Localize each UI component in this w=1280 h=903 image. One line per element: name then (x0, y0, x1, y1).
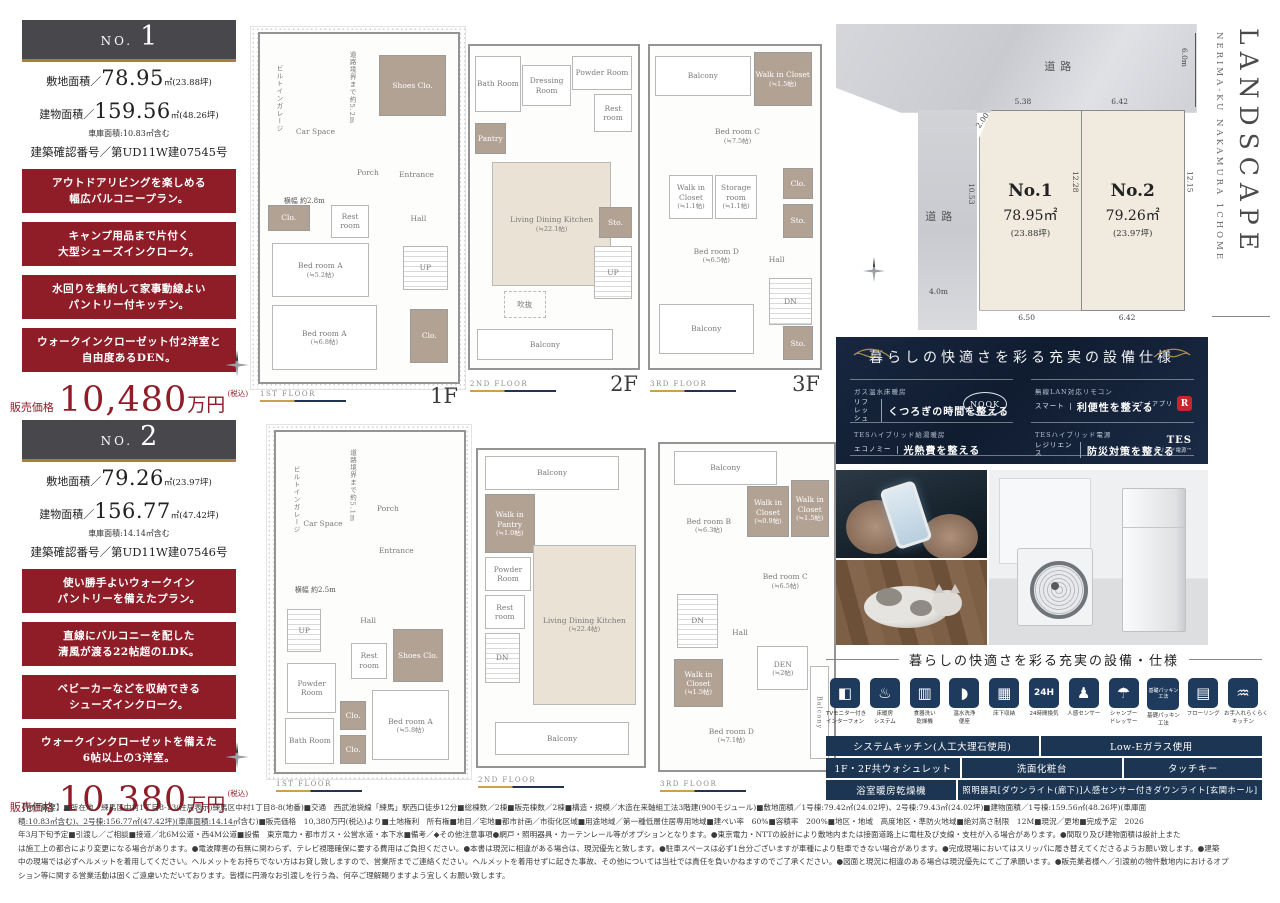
unit1-floorplan-3f: Balcony Walk in Closet(≒1.5帖) Bed room C… (648, 44, 822, 370)
dim-538: 5.38 (1015, 97, 1032, 106)
room-porch: Porch (353, 159, 383, 187)
room-balcony-bottom: Balcony (495, 722, 630, 756)
room-balcony-top: Balcony (655, 56, 751, 97)
rinnai-app-badge: リンナイアプリ R (1124, 396, 1192, 411)
room-shoes-closet: Shoes Clo. (393, 629, 444, 682)
table-row: 浴室暖房乾燥機 照明器具[ダウンライト(廊下)]人感センサー付きダウンライト[玄… (826, 780, 1262, 800)
room-walkin-pantry: Walk in Pantry(≒1.0帖) (485, 494, 535, 553)
garage-label: ビルトインガレージ (291, 466, 301, 575)
compass-icon (224, 350, 250, 380)
unit1-land-area: 敷地面積／78.95㎡(23.88坪) (22, 66, 236, 95)
cat-head (932, 590, 962, 616)
unit2-no-label: NO. (101, 424, 133, 448)
stairs-up: UP (594, 246, 631, 300)
stairs-down: DN (769, 278, 812, 325)
unit2-feature-4: ウォークインクローゼットを備えた6帖以上の3洋室。 (22, 728, 236, 772)
underfloor-storage-icon: ▦ 床下収納 (985, 678, 1023, 728)
room-hall: Hall (726, 620, 754, 646)
floor-number-3f: 3F (792, 372, 820, 396)
nook-logo: NOOK (963, 392, 1007, 416)
legal-line: 【物件概要】■所在地／練馬区中村1丁目8-13(住居表示)練馬区中村1丁目8-8… (18, 801, 1264, 815)
floor-label-1f: 1ST FLOOR (276, 780, 362, 792)
room-restroom: Rest room (594, 94, 631, 131)
photo-smartphone-app (836, 470, 987, 558)
washlet-icon: ◗ 温水洗浄便座 (945, 678, 983, 728)
unit2-feature-3: ベビーカーなどを収納できるシューズインクローク。 (22, 675, 236, 719)
room-restroom: Rest room (331, 205, 369, 238)
table-cell-lighting: 照明器具[ダウンライト(廊下)]人感センサー付きダウンライト[玄関ホール] (958, 780, 1262, 800)
legal-line: 中の現場では必ずヘルメットを着用してください。ヘルメットをお持ちでない方はお貸し… (18, 855, 1264, 869)
room-restroom: Rest room (485, 595, 525, 629)
dimension-line (1195, 33, 1196, 106)
unit1-garage-note: 車庫面積:10.83㎡含む (22, 128, 236, 139)
room-bedroom-a: Bed room A(≒5.8帖) (372, 690, 449, 760)
title-dash (826, 659, 899, 660)
flourish-icon (850, 345, 892, 369)
landscape-title: LANDSCAPE (1234, 28, 1263, 310)
unit1-building-area: 建物面積／159.56㎡(48.26坪) (22, 99, 236, 128)
unit1-header: NO. 1 (22, 20, 236, 62)
dim-4m: 4.0m (929, 287, 948, 296)
equipment-table: システムキッチン(人工大理石使用) Low-Eガラス使用 1F・2F共ウォシュレ… (826, 736, 1262, 800)
room-powder: Powder Room (572, 56, 631, 90)
shampoo-dresser-icon: ☂ シャンプードレッサー (1105, 678, 1143, 728)
unit1-floorplan-2f: Bath Room Dressing Room Powder Room Rest… (468, 44, 640, 370)
site-lot-2: No.2 79.26㎡ (23.97坪) (1081, 110, 1185, 311)
compass-icon (862, 257, 886, 285)
room-wic: Walk in Closet(≒1.5帖) (754, 52, 812, 106)
rinnai-app-icon: R (1177, 396, 1192, 411)
room-bedroom-a: Bed room A(≒5.2帖) (272, 243, 369, 297)
title-dash (1189, 659, 1262, 660)
table-cell-touch-key: タッチキー (1124, 758, 1262, 778)
room-storage: Sto. (783, 204, 814, 238)
unit1-no-label: NO. (101, 24, 133, 48)
landscape-margin: NERIMA-KU NAKAMURA 1CHOME LANDSCAPE (1214, 28, 1270, 310)
room-balcony: Balcony (477, 329, 613, 360)
unit1-floorplan-1f: Car Space ビルトインガレージ 道路境界まで約5.2m 横幅 約2.8m… (258, 32, 460, 384)
room-closet: Clo. (268, 205, 310, 231)
depth-dimension: 道路境界まで約5.1m (347, 449, 357, 578)
room-bedroom-c: Bed room C(≒7.5帖) (691, 104, 785, 168)
site-lot-1: No.1 78.95㎡ (23.88坪) (979, 110, 1081, 311)
unit1-feature-2: キャンプ用品まで片付く大型シューズインクローク。 (22, 222, 236, 266)
room-wic: Walk in Closet(≒0.9帖) (747, 486, 789, 537)
unit2-feature-2: 直線にバルコニーを配した清風が渡る22帖超のLDK。 (22, 622, 236, 666)
unit2-confirmation-number: 建築確認番号／第UD11W建07546号 (22, 544, 236, 560)
floor-label-3f: 3RD FLOOR (650, 380, 736, 392)
equipment-icon-row: ◧ TVモニター付きインターフォン ♨ 床暖房システム ▥ 食器洗い乾燥機 ◗ … (826, 678, 1262, 728)
room-bathroom: Bath Room (285, 718, 334, 764)
equipment-section: 暮らしの快適さを彩る充実の設備・仕様 ◧ TVモニター付きインターフォン ♨ 床… (826, 650, 1262, 800)
room-bedroom-d: Bed room D(≒7.1帖) (691, 711, 771, 760)
floor-label-2f: 2ND FLOOR (470, 380, 556, 392)
stairs-down: DN (677, 594, 717, 648)
water-heater-tank (1122, 488, 1186, 632)
room-wic-2: Walk in Closet(≒1.1帖) (669, 175, 714, 219)
dim-6m: 6.0m (1180, 48, 1189, 67)
width-dimension: 横幅 約2.5m (295, 585, 336, 595)
room-wic-3: Walk in Closet(≒1.5帖) (674, 659, 723, 707)
cat-patch (876, 588, 902, 606)
easy-care-kitchen-icon: ♒ お手入れらくらくキッチン (1224, 678, 1262, 728)
room-balcony-top: Balcony (485, 456, 620, 490)
dim-642-top: 6.42 (1111, 97, 1128, 106)
unit2-land-area: 敷地面積／79.26㎡(23.97坪) (22, 466, 236, 495)
room-closet-2: Clo. (340, 735, 366, 764)
unit1-price: 販売価格 10,480 万円 (税込) (22, 380, 236, 420)
garage-label: ビルトインガレージ (274, 65, 284, 183)
room-bedroom-c: Bed room C(≒6.5帖) (750, 548, 820, 613)
unit1-feature-4: ウォークインクローゼット付2洋室と自由度あるDEN。 (22, 328, 236, 372)
legal-line: 積:10.83㎡含む)、2号棟:156.77㎡(47.42坪)(車庫面積:14.… (18, 815, 1264, 829)
unit2-feature-1: 使い勝手よいウォークインパントリーを備えたプラン。 (22, 569, 236, 613)
spec-item-wireless-remote: 無線LAN対応リモコン スマート 利便性を整える リンナイアプリ R (1031, 379, 1194, 422)
room-shoes-closet: Shoes Clo. (379, 55, 446, 116)
legal-line: は施工上の都合により変更になる場合があります。●電波障害の有無に関わらず、テレビ… (18, 842, 1264, 856)
spec-item-tes-hot-water: TESハイブリッド給湯暖房 エコノミー 光熱費を整える (850, 422, 1013, 458)
table-cell-bath-dryer: 浴室暖房乾燥機 (826, 780, 956, 800)
unit1-panel: NO. 1 敷地面積／78.95㎡(23.88坪) 建物面積／159.56㎡(4… (22, 20, 236, 426)
stairs-up: UP (403, 246, 449, 290)
cat-ear (934, 584, 944, 593)
unit2-building-area: 建物面積／156.77㎡(47.42坪) (22, 499, 236, 528)
equipment-title: 暮らしの快適さを彩る充実の設備・仕様 (909, 650, 1179, 669)
floor-number-2f: 2F (610, 372, 638, 396)
fan-grille (1030, 561, 1088, 619)
landscape-rule (1212, 316, 1270, 317)
room-storage-room: Storage room(≒1.1帖) (715, 175, 758, 219)
floor-heating-icon: ♨ 床暖房システム (866, 678, 904, 728)
room-hall: Hall (347, 602, 388, 639)
table-cell-washlet: 1F・2F共ウォシュレット (826, 758, 960, 778)
dim-1228: 12.28 (1071, 171, 1080, 192)
legal-line: ション等に関する営業活動は固くご遠慮いただいております。皆様に円滑なお引渡しを行… (18, 869, 1264, 883)
legal-line: 年3月下旬予定■引渡し／ご相談■接道／北6M公道・西4M公道■設備 東京電力・都… (18, 828, 1264, 842)
table-cell-vanity: 洗面化粧台 (962, 758, 1122, 778)
flooring-icon: ▤ フローリング (1184, 678, 1222, 728)
room-dressing: Dressing Room (522, 65, 571, 106)
cat-ear (950, 584, 960, 593)
spec-item-tes-power: TESハイブリッド電源 レジリエンス 防災対策を整える TES ハイブリッド電源… (1031, 422, 1194, 458)
dim-642-bottom: 6.42 (1119, 313, 1136, 322)
motion-sensor-icon: ♟ 人感センサー (1065, 678, 1103, 728)
unit2-floorplan-3f: Balcony Walk in Closet(≒0.9帖) Walk in Cl… (658, 442, 836, 772)
site-plan: 道路 道路 No.1 78.95㎡ (23.88坪) No.2 79.26㎡ (… (836, 24, 1208, 330)
room-entrance: Entrance (387, 159, 446, 190)
floor-label-3f: 3RD FLOOR (660, 780, 746, 792)
room-hall: Hall (391, 198, 446, 240)
table-row: 1F・2F共ウォシュレット 洗面化粧台 タッチキー (826, 758, 1262, 778)
room-restroom: Rest room (351, 643, 387, 679)
photo-hybrid-water-heater (989, 470, 1208, 645)
foundation-packing-icon: 基礎パッキン工法 基礎パッキン工法 (1144, 678, 1182, 728)
table-row: システムキッチン(人工大理石使用) Low-Eガラス使用 (826, 736, 1262, 756)
room-hall: Hall (764, 246, 790, 275)
room-bedroom-d: Bed room D(≒6.5帖) (674, 226, 759, 284)
unit2-number: 2 (140, 422, 157, 452)
compass-icon (224, 742, 250, 772)
room-balcony-top: Balcony (674, 451, 777, 486)
spec-highlight-panel: 暮らしの快適さを彩る充実の設備仕様 ガス温水床暖房 リフレッシュ くつろぎの時間… (836, 337, 1208, 464)
table-cell-system-kitchen: システムキッチン(人工大理石使用) (826, 736, 1039, 756)
ventilation-24h-icon: 24H 24時間換気 (1025, 678, 1063, 728)
room-storage: Sto. (599, 207, 631, 238)
unit1-number: 1 (140, 22, 157, 52)
dishwasher-icon: ▥ 食器洗い乾燥機 (906, 678, 944, 728)
photo-cat-floor-heating (836, 560, 987, 645)
room-storage-2: Sto. (783, 326, 814, 360)
unit2-floorplan-2f: Balcony Walk in Pantry(≒1.0帖) Powder Roo… (476, 448, 646, 768)
room-pantry: Pantry (475, 123, 506, 154)
room-porch: Porch (374, 493, 402, 524)
unit1-feature-1: アウトドアリビングを楽しめる幅広バルコニープラン。 (22, 169, 236, 213)
floor-number-1f: 1F (430, 384, 458, 408)
room-bedroom-a2: Bed room A(≒6.8帖) (272, 305, 377, 370)
property-overview-text: 【物件概要】■所在地／練馬区中村1丁目8-13(住居表示)練馬区中村1丁目8-8… (18, 801, 1264, 893)
room-closet-2: Clo. (410, 309, 448, 363)
road-label-top: 道路 (1044, 58, 1076, 74)
room-bedroom-b: Bed room B(≒6.3帖) (674, 496, 744, 555)
flourish-icon (1152, 345, 1194, 369)
room-bathroom: Bath Room (475, 56, 521, 113)
unit2-panel: NO. 2 敷地面積／79.26㎡(23.97坪) 建物面積／156.77㎡(4… (22, 420, 236, 826)
room-closet: Clo. (340, 701, 366, 730)
spec-item-floor-heating: ガス温水床暖房 リフレッシュ くつろぎの時間を整える NOOK (850, 379, 1013, 422)
room-den: DEN(≒2帖) (757, 646, 808, 690)
fan-hub (1051, 582, 1059, 590)
floor-label-1f: 1ST FLOOR (260, 390, 346, 402)
unit2-garage-note: 車庫面積:14.14㎡含む (22, 528, 236, 539)
room-closet: Clo. (783, 168, 814, 199)
dim-1053: 10.53 (967, 183, 976, 204)
cat-patch (910, 600, 932, 616)
location-en-text: NERIMA-KU NAKAMURA 1CHOME (1214, 32, 1224, 314)
room-entrance: Entrance (374, 534, 419, 568)
unit2-header: NO. 2 (22, 420, 236, 462)
stairs-down: DN (485, 633, 520, 682)
room-powder: Powder Room (485, 557, 532, 591)
tank-seam (1123, 527, 1185, 528)
unit2-floorplan-1f: Car Space ビルトインガレージ 道路境界まで約5.1m 横幅 約2.5m… (274, 430, 466, 774)
road-label-left: 道路 (925, 208, 957, 224)
room-void: 吹抜 (504, 291, 546, 319)
room-powder: Powder Room (287, 663, 336, 713)
floor-label-2f: 2ND FLOOR (478, 776, 564, 788)
room-wic-2: Walk in Closet(≒1.5帖) (791, 480, 830, 537)
room-ldk: Living Dining Kitchen(≒22.4帖) (533, 545, 636, 705)
table-cell-lowe-glass: Low-Eガラス使用 (1041, 736, 1262, 756)
dim-1215: 12.15 (1186, 171, 1195, 192)
stairs-up: UP (287, 609, 321, 652)
tv-intercom-icon: ◧ TVモニター付きインターフォン (826, 678, 864, 728)
heat-pump-unit (1017, 548, 1093, 626)
flyer-page: NO. 1 敷地面積／78.95㎡(23.88坪) 建物面積／159.56㎡(4… (0, 0, 1280, 903)
tes-logo: TES ハイブリッド電源™ (1143, 435, 1192, 454)
unit1-confirmation-number: 建築確認番号／第UD11W建07545号 (22, 144, 236, 160)
room-balcony-bottom: Balcony (659, 304, 755, 354)
unit1-feature-3: 水回りを集約して家事動線よいパントリー付キッチン。 (22, 275, 236, 319)
equipment-title-row: 暮らしの快適さを彩る充実の設備・仕様 (826, 650, 1262, 669)
dim-650: 6.50 (1018, 313, 1035, 322)
